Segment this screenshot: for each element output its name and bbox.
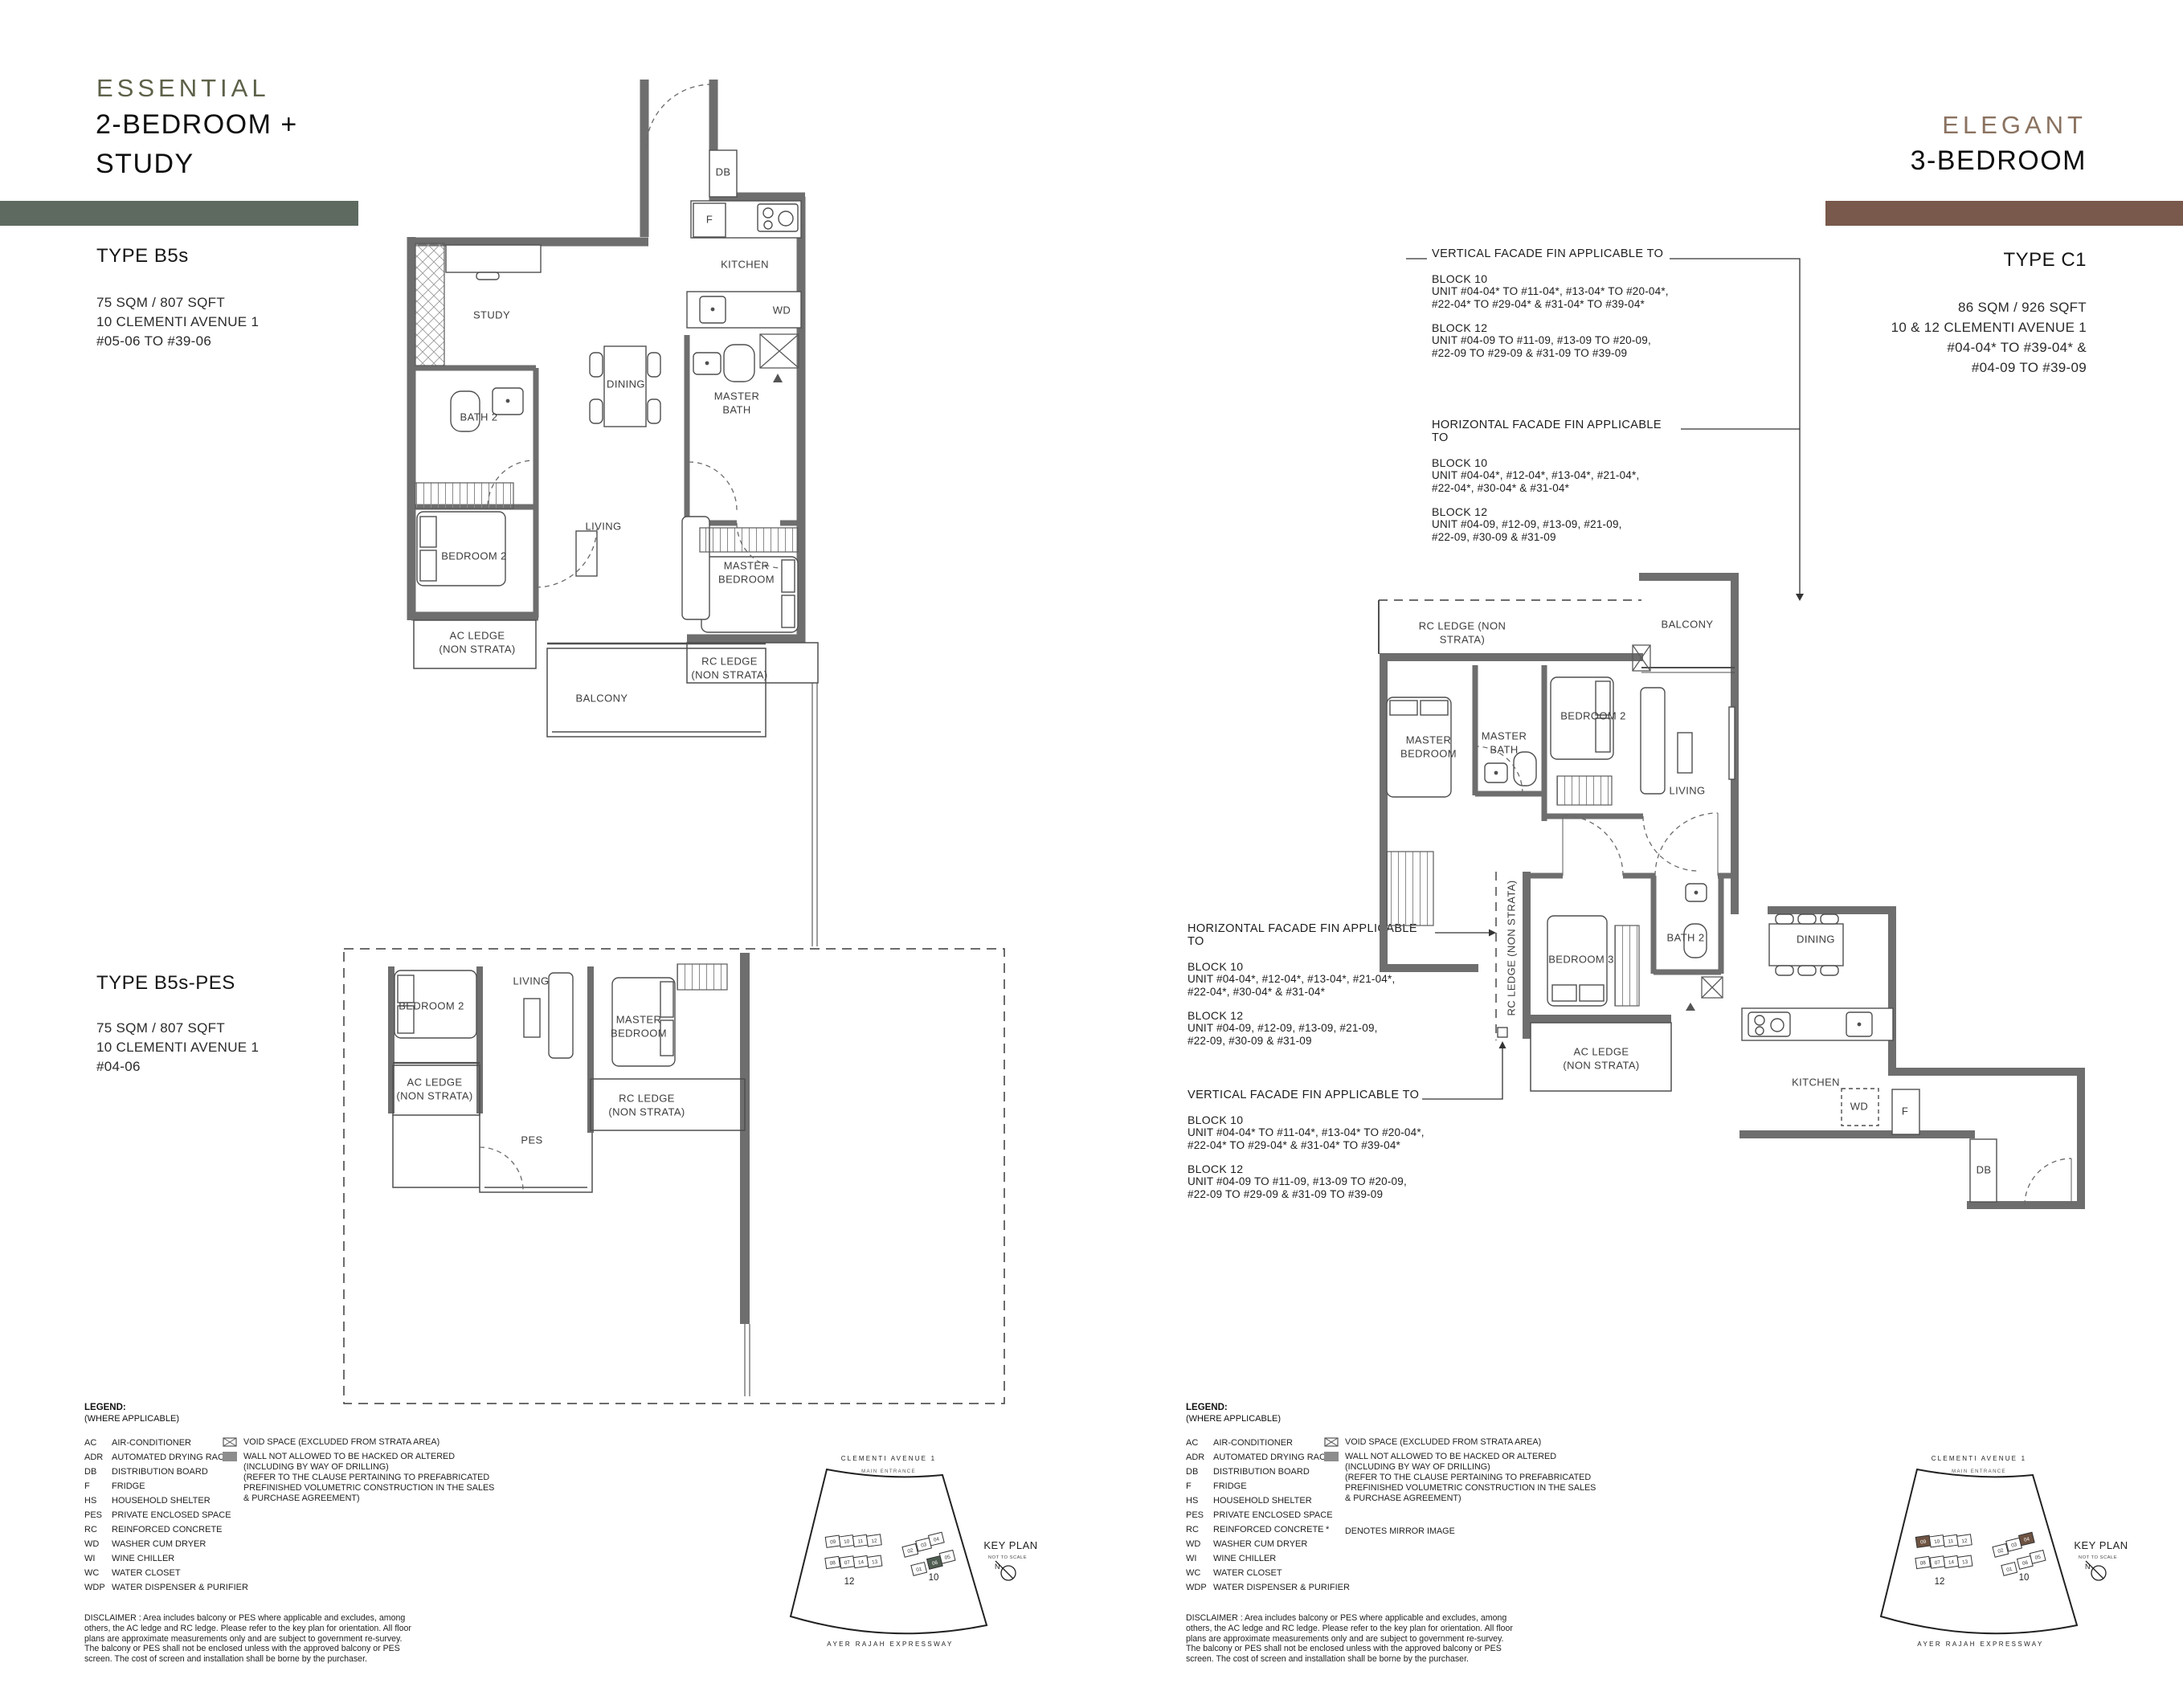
left-title-line1: 2-BEDROOM + [96, 109, 298, 141]
right-title-line1: 3-BEDROOM [1911, 145, 2087, 177]
c1-room-master-bath: MASTER BATH [1478, 729, 1530, 756]
pes-ac-ledge: AC LEDGE (NON STRATA) [394, 1076, 475, 1102]
c1-room-kitchen: KITCHEN [1792, 1077, 1840, 1090]
pes-labels: BEDROOM 2 LIVING MASTER BEDROOM AC LEDGE… [341, 946, 1008, 1408]
keyplan-subtitle: NOT TO SCALE [988, 1555, 1027, 1560]
svg-text:07: 07 [844, 1559, 850, 1566]
svg-text:13: 13 [1962, 1559, 1968, 1566]
brochure-page: { "page": {"bg": "#ffffff", "wall_color"… [0, 0, 2183, 1708]
svg-text:09: 09 [1920, 1539, 1927, 1546]
pes-room-bedroom2: BEDROOM 2 [399, 1000, 464, 1014]
svg-text:08: 08 [829, 1560, 836, 1567]
c1-room-db: DB [1977, 1164, 1992, 1178]
keyplan-site-boundary [791, 1469, 987, 1633]
b5s-room-bath2: BATH 2 [460, 411, 498, 425]
facade-leader-lines-top [1404, 251, 1810, 604]
type-c1-area: 86 SQM / 926 SQFT [1891, 297, 2087, 317]
b5s-room-dining: DINING [607, 378, 645, 392]
keyplan-left: CLEMENTI AVENUE 1 MAIN ENTRANCE 09 10 11… [783, 1434, 1057, 1699]
c1-labels: RC LEDGE (NON STRATA) BALCONY MASTER BED… [1366, 562, 2089, 1217]
b5s-room-wd: WD [773, 304, 791, 318]
type-b5s-pes-area: 75 SQM / 807 SQFT [96, 1019, 259, 1038]
b5s-labels: DB F KITCHEN WD STUDY BATH 2 DINING MAST… [406, 76, 820, 952]
keyplan-title: KEY PLAN [2074, 1539, 2128, 1551]
keyplan-site-boundary [1881, 1469, 2077, 1633]
keyplan-subtitle: NOT TO SCALE [2079, 1555, 2117, 1560]
mirror-asterisk: * [1326, 1525, 1329, 1534]
wall-no-hack-icon [223, 1452, 237, 1461]
keyplan-street-bottom: AYER RAJAH EXPRESSWAY [1917, 1641, 2043, 1648]
mirror-note: DENOTES MIRROR IMAGE [1345, 1526, 1455, 1537]
type-c1-units-2: #04-09 TO #39-09 [1891, 358, 2087, 378]
compass-icon [1001, 1566, 1016, 1580]
keyplan-block12-units: 09 10 11 12 08 07 14 13 [1912, 1530, 1975, 1574]
disclaimer-right: DISCLAIMER : Area includes balcony or PE… [1186, 1613, 1514, 1665]
pes-rc-ledge: RC LEDGE (NON STRATA) [607, 1092, 687, 1118]
c1-room-master-bedroom: MASTER BEDROOM [1394, 733, 1463, 760]
void-space-icon [223, 1437, 237, 1447]
keyplan-north-label: N [995, 1563, 1000, 1571]
pes-room-pes: PES [521, 1134, 542, 1148]
b5s-room-bedroom2: BEDROOM 2 [441, 550, 507, 564]
c1-rc-ledge-side-label: RC LEDGE (NON STRATA) [1506, 881, 1519, 1016]
c1-ac-ledge-label: AC LEDGE (NON STRATA) [1561, 1045, 1641, 1072]
wall-no-hack-icon [1324, 1452, 1339, 1461]
type-c1-address: 10 & 12 CLEMENTI AVENUE 1 [1891, 317, 2087, 337]
keyplan-street-bottom: AYER RAJAH EXPRESSWAY [827, 1641, 953, 1648]
b5s-room-db: DB [716, 166, 731, 180]
right-collection-title: ELEGANT [1942, 111, 2087, 140]
b5s-room-living: LIVING [585, 521, 621, 534]
svg-text:12: 12 [1961, 1538, 1968, 1544]
b5s-room-kitchen: KITCHEN [721, 259, 769, 272]
c1-room-dining: DINING [1797, 934, 1835, 947]
type-b5s-pes-units: #04-06 [96, 1057, 259, 1077]
svg-text:13: 13 [872, 1559, 878, 1566]
type-c1-units-1: #04-04* TO #39-04* & [1891, 337, 2087, 358]
svg-text:09: 09 [830, 1539, 836, 1546]
keyplan-block12-label: 12 [844, 1577, 855, 1587]
svg-text:14: 14 [1948, 1559, 1955, 1566]
keyplan-entrance: MAIN ENTRANCE [861, 1469, 916, 1474]
keyplan-entrance: MAIN ENTRANCE [1952, 1469, 2006, 1474]
type-c1-details: 86 SQM / 926 SQFT 10 & 12 CLEMENTI AVENU… [1891, 297, 2087, 378]
type-b5s-name: TYPE B5s [96, 245, 189, 268]
b5s-rc-ledge: RC LEDGE (NON STRATA) [689, 655, 770, 681]
type-b5s-pes-details: 75 SQM / 807 SQFT 10 CLEMENTI AVENUE 1 #… [96, 1019, 259, 1077]
keyplan-block12-label: 12 [1935, 1577, 1945, 1587]
type-b5s-area: 75 SQM / 807 SQFT [96, 293, 259, 313]
keyplan-title: KEY PLAN [983, 1539, 1037, 1551]
right-accent-bar [1825, 201, 2183, 226]
c1-room-living: LIVING [1669, 785, 1705, 799]
keyplan-street-top: CLEMENTI AVENUE 1 [841, 1455, 937, 1462]
disclaimer-left: DISCLAIMER : Area includes balcony or PE… [84, 1613, 412, 1665]
b5s-room-master-bedroom: MASTER BEDROOM [712, 559, 781, 586]
keyplan-block10-label: 10 [929, 1573, 939, 1583]
keyplan-block10-label: 10 [2019, 1573, 2030, 1583]
pes-room-living: LIVING [513, 975, 549, 989]
b5s-ac-ledge: AC LEDGE (NON STRATA) [437, 629, 517, 656]
keyplan-north-label: N [2085, 1563, 2091, 1571]
left-collection-title: ESSENTIAL [96, 74, 270, 103]
svg-text:10: 10 [844, 1538, 850, 1545]
b5s-room-study: STUDY [473, 309, 510, 323]
svg-text:07: 07 [1934, 1559, 1940, 1566]
b5s-room-balcony: BALCONY [576, 693, 628, 706]
c1-room-balcony: BALCONY [1662, 619, 1714, 632]
pes-room-master-bedroom: MASTER BEDROOM [604, 1013, 673, 1040]
c1-room-f: F [1902, 1105, 1908, 1119]
svg-text:14: 14 [858, 1559, 865, 1566]
type-b5s-pes-address: 10 CLEMENTI AVENUE 1 [96, 1038, 259, 1057]
left-accent-bar [0, 201, 358, 226]
compass-icon [2091, 1566, 2106, 1580]
keyplan-block12-units: 09 10 11 12 08 07 14 13 [822, 1530, 885, 1574]
void-space-icon [1324, 1437, 1339, 1447]
b5s-room-f: F [706, 214, 713, 227]
c1-room-wd: WD [1850, 1101, 1868, 1114]
keyplan-street-top: CLEMENTI AVENUE 1 [1932, 1455, 2027, 1462]
b5s-room-master-bath: MASTER BATH [711, 390, 762, 416]
keyplan-block10-units: 02 03 04 01 06 05 [901, 1530, 957, 1576]
keyplan-block10-units: 02 03 04 01 06 05 [1992, 1530, 2047, 1576]
left-title-line2: STUDY [96, 149, 194, 180]
svg-text:12: 12 [871, 1538, 877, 1544]
type-b5s-units: #05-06 TO #39-06 [96, 332, 259, 351]
type-b5s-pes-name: TYPE B5s-PES [96, 972, 235, 995]
c1-room-bedroom2: BEDROOM 2 [1560, 710, 1626, 724]
svg-text:10: 10 [1934, 1538, 1940, 1545]
type-c1-name: TYPE C1 [2003, 249, 2087, 272]
keyplan-right: CLEMENTI AVENUE 1 MAIN ENTRANCE 09 10 11… [1874, 1434, 2147, 1699]
svg-text:08: 08 [1919, 1560, 1926, 1567]
c1-room-bath2: BATH 2 [1667, 932, 1705, 946]
c1-room-bedroom3: BEDROOM 3 [1548, 954, 1614, 967]
type-b5s-address: 10 CLEMENTI AVENUE 1 [96, 313, 259, 332]
c1-rc-ledge-top-label: RC LEDGE (NON STRATA) [1410, 619, 1515, 646]
type-b5s-details: 75 SQM / 807 SQFT 10 CLEMENTI AVENUE 1 #… [96, 293, 259, 351]
